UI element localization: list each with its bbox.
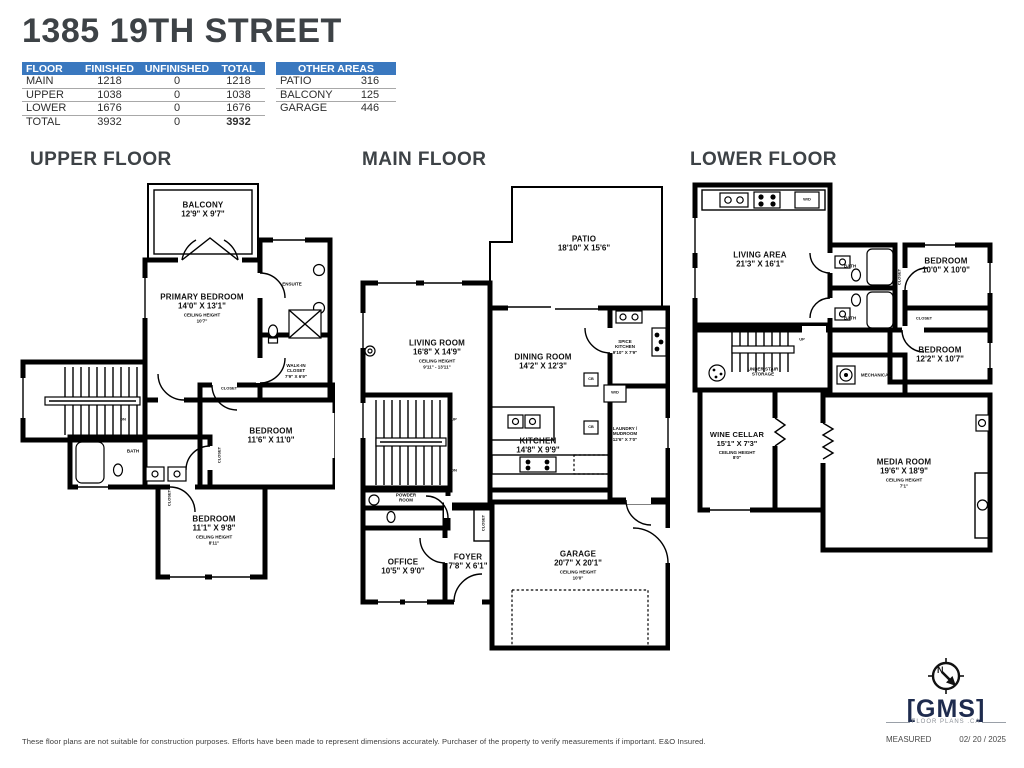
room-label-wine-cellar: WINE CELLAR 15'1" X 7'3" CEILING HEIGHT8… <box>710 431 764 461</box>
row-value: 316 <box>344 75 396 87</box>
table-row: UPPER 1038 0 1038 <box>22 89 265 103</box>
room-label-powder-room: POWDER ROOM <box>391 493 421 504</box>
upper-floor-heading: UPPER FLOOR <box>30 149 172 171</box>
compass-icon: N <box>925 655 967 697</box>
room-label-living-area: LIVING AREA 21'3" X 16'1" <box>733 251 786 270</box>
row-value: 125 <box>344 89 396 101</box>
cb-label: CB <box>588 425 593 429</box>
row-floor: LOWER <box>22 102 77 114</box>
bath-label: BATH <box>844 263 856 268</box>
row-floor: TOTAL <box>22 116 77 128</box>
row-finished: 3932 <box>77 116 142 128</box>
row-finished: 1218 <box>77 75 142 87</box>
col-other-areas: OTHER AREAS <box>276 63 396 75</box>
row-total: 3932 <box>212 116 265 128</box>
closet-label: CLOSET <box>221 387 237 392</box>
room-label-dining-room: DINING ROOM 14'2" X 12'3" <box>514 353 571 372</box>
table-row: BALCONY 125 <box>276 89 396 103</box>
room-label-office: OFFICE 10'5" X 9'0" <box>381 558 424 577</box>
lower-floor-plan: LIVING AREA 21'3" X 16'1" W/D BATH BATH … <box>690 178 995 570</box>
room-label-spice-kitchen: SPICE KITCHEN 9'10" X 7'9" <box>608 339 642 355</box>
other-areas-table: OTHER AREAS PATIO 316 BALCONY 125 GARAGE… <box>276 62 396 115</box>
room-label-bedroom1: BEDROOM 11'6" X 11'0" <box>248 427 295 446</box>
room-label-garage: GARAGE 20'7" X 20'1" CEILING HEIGHT10'0" <box>554 549 602 580</box>
closet-label: CLOSET <box>916 317 932 322</box>
row-total: 1038 <box>212 89 265 101</box>
row-total: 1676 <box>212 102 265 114</box>
row-floor: MAIN <box>22 75 77 87</box>
row-floor: UPPER <box>22 89 77 101</box>
room-label-ensuite: ENSUITE <box>282 281 302 286</box>
measured-date: MEASURED 02/ 20 / 2025 <box>886 735 1006 744</box>
row-value: 446 <box>344 102 396 114</box>
row-name: PATIO <box>276 75 344 87</box>
row-unfinished: 0 <box>142 116 212 128</box>
stairs-dn-label: DN <box>451 469 457 474</box>
upper-floor-drawing <box>20 178 335 583</box>
col-unfinished: UNFINISHED <box>142 63 212 75</box>
room-label-primary-bedroom: PRIMARY BEDROOM 14'0" X 13'1" CEILING HE… <box>160 292 243 323</box>
row-total: 1218 <box>212 75 265 87</box>
row-unfinished: 0 <box>142 102 212 114</box>
table-row: GARAGE 446 <box>276 102 396 115</box>
row-unfinished: 0 <box>142 75 212 87</box>
stairs-dn-label: DN <box>120 418 126 423</box>
col-floor: FLOOR <box>22 63 77 75</box>
room-label-under-stair-storage: UNDER STAIR STORAGE <box>744 367 782 378</box>
area-table-header: FLOOR FINISHED UNFINISHED TOTAL <box>22 62 265 75</box>
row-name: BALCONY <box>276 89 344 101</box>
table-row: MAIN 1218 0 1218 <box>22 75 265 89</box>
room-label-media-room: MEDIA ROOM 19'6" X 18'9" CEILING HEIGHT7… <box>877 457 932 488</box>
room-label-bedroom1: BEDROOM 10'0" X 10'0" <box>922 257 970 276</box>
room-label-living-room: LIVING ROOM 16'8" X 14'9" CEILING HEIGHT… <box>409 338 465 369</box>
closet-label: CLOSET <box>217 447 222 463</box>
other-areas-header: OTHER AREAS <box>276 62 396 75</box>
bath-label: BATH <box>844 315 856 320</box>
room-label-kitchen: KITCHEN 14'8" X 9'9" <box>516 437 559 456</box>
closet-label: CLOSET <box>167 490 172 506</box>
main-floor-heading: MAIN FLOOR <box>362 149 486 171</box>
upper-floor-plan: BALCONY 12'9" X 9'7" PRIMARY BEDROOM 14'… <box>20 178 335 583</box>
row-finished: 1676 <box>77 102 142 114</box>
row-unfinished: 0 <box>142 89 212 101</box>
area-table: FLOOR FINISHED UNFINISHED TOTAL MAIN 121… <box>22 62 265 128</box>
closet-label: CLOSET <box>481 515 486 531</box>
col-finished: FINISHED <box>77 63 142 75</box>
cb-label: CB <box>588 377 593 381</box>
room-label-foyer: FOYER 7'8" X 6'1" <box>449 553 488 572</box>
room-label-laundry-mudroom: LAUNDRY / MUDROOM 12'6" X 7'0" <box>607 426 643 442</box>
room-label-bedroom2: BEDROOM 11'1" X 9'8" CEILING HEIGHT8'11" <box>192 514 235 545</box>
lower-floor-heading: LOWER FLOOR <box>690 149 837 171</box>
main-floor-plan: PATIO 18'10" X 15'6" LIVING ROOM 16'8" X… <box>358 178 670 660</box>
room-label-balcony: BALCONY 12'9" X 9'7" <box>181 201 224 220</box>
floor-plan-page: 1385 19TH STREET FLOOR FINISHED UNFINISH… <box>0 0 1024 768</box>
table-row: PATIO 316 <box>276 75 396 89</box>
page-title: 1385 19TH STREET <box>22 12 342 51</box>
row-name: GARAGE <box>276 102 344 114</box>
bath-label: BATH <box>127 448 139 453</box>
room-label-mechanical: MECHANICAL <box>861 372 891 377</box>
gms-logo: N [GMS] FLOOR PLANS .CA <box>886 655 1006 725</box>
stairs-up-label: UP <box>451 418 457 423</box>
closet-label: CLOSET <box>897 269 902 285</box>
main-floor-drawing <box>358 178 670 660</box>
lower-floor-drawing <box>690 178 995 570</box>
row-finished: 1038 <box>77 89 142 101</box>
table-row-total: TOTAL 3932 0 3932 <box>22 116 265 129</box>
room-label-bedroom2: BEDROOM 12'2" X 10'7" <box>916 346 964 365</box>
logo-tagline: FLOOR PLANS .CA <box>886 719 1006 725</box>
disclaimer-text: These floor plans are not suitable for c… <box>22 737 706 746</box>
stairs-up-label: UP <box>799 338 805 343</box>
wd-label: W/D <box>803 198 811 203</box>
room-label-walkin-closet: WALK-IN CLOSET 7'9" X 6'9" <box>278 363 314 379</box>
col-total: TOTAL <box>212 63 265 75</box>
wd-label: W/D <box>611 391 619 396</box>
table-row: LOWER 1676 0 1676 <box>22 102 265 116</box>
room-label-patio: PATIO 18'10" X 15'6" <box>558 235 610 254</box>
